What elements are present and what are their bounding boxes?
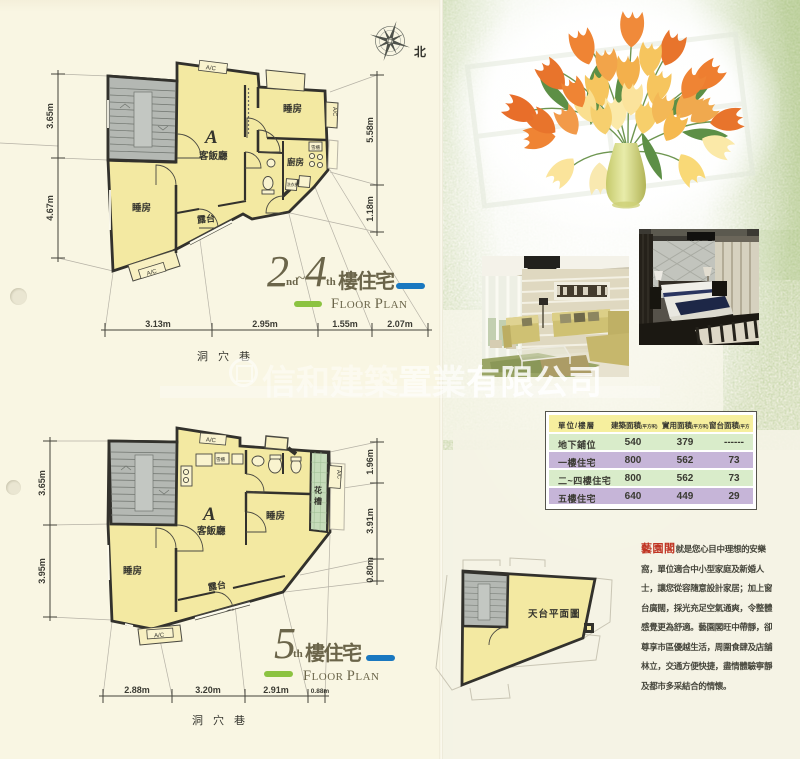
svg-text:3.13m: 3.13m [145, 319, 171, 329]
svg-text:睡房: 睡房 [123, 565, 142, 577]
svg-text:2.88m: 2.88m [124, 685, 150, 695]
svg-text:A/C: A/C [335, 470, 342, 480]
svg-text:1.18m: 1.18m [365, 196, 375, 222]
svg-text:5.58m: 5.58m [365, 117, 375, 143]
svg-text:北: 北 [414, 44, 426, 59]
svg-text:廚房: 廚房 [287, 157, 304, 167]
svg-text:2.91m: 2.91m [263, 685, 289, 695]
svg-text:0.88m: 0.88m [311, 688, 330, 695]
svg-text:雪櫃: 雪櫃 [216, 456, 225, 463]
svg-text:1.55m: 1.55m [332, 319, 358, 329]
svg-text:花: 花 [314, 485, 322, 495]
svg-text:睡房: 睡房 [266, 510, 285, 522]
svg-text:2.07m: 2.07m [387, 319, 413, 329]
svg-text:3.95m: 3.95m [37, 558, 47, 584]
svg-text:1.96m: 1.96m [365, 449, 375, 475]
svg-text:雪櫃: 雪櫃 [311, 144, 320, 151]
svg-text:3.65m: 3.65m [37, 470, 47, 496]
svg-text:露台: 露台 [196, 212, 215, 225]
svg-text:客飯廳: 客飯廳 [198, 150, 228, 162]
svg-text:睡房: 睡房 [283, 103, 302, 115]
svg-text:洗衣機: 洗衣機 [287, 182, 299, 187]
svg-text:睡房: 睡房 [132, 202, 151, 214]
svg-text:0.80m: 0.80m [365, 557, 375, 583]
svg-text:4.67m: 4.67m [45, 195, 55, 221]
svg-text:2.95m: 2.95m [252, 319, 278, 329]
svg-text:槽: 槽 [314, 496, 322, 506]
svg-text:洞穴巷: 洞穴巷 [192, 713, 255, 727]
svg-text:天台平面圖: 天台平面圖 [528, 608, 581, 620]
svg-text:3.65m: 3.65m [45, 103, 55, 129]
svg-text:客飯廳: 客飯廳 [196, 525, 226, 537]
svg-text:A: A [202, 504, 216, 525]
svg-text:3.20m: 3.20m [195, 685, 221, 695]
svg-text:A/C: A/C [206, 437, 217, 444]
svg-text:A: A [204, 127, 218, 148]
svg-text:3.91m: 3.91m [365, 508, 375, 534]
svg-text:A/C: A/C [154, 633, 165, 640]
svg-text:A/C: A/C [331, 107, 337, 116]
